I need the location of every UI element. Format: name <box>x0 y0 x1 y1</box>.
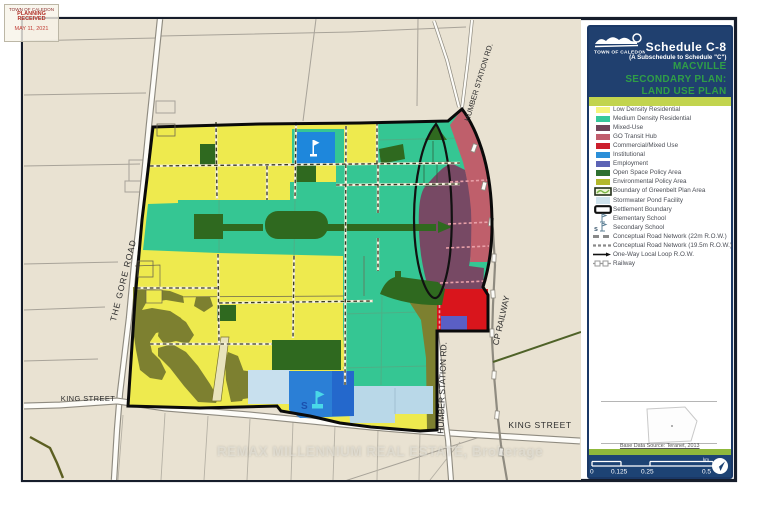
svg-text:0.25: 0.25 <box>641 469 654 476</box>
svg-text:0.125: 0.125 <box>611 469 628 476</box>
svg-text:S: S <box>301 401 308 412</box>
svg-text:0.5: 0.5 <box>702 469 711 476</box>
svg-text:KING STREET: KING STREET <box>508 420 571 430</box>
svg-text:KING STREET: KING STREET <box>61 394 115 403</box>
svg-text:km: km <box>703 457 709 462</box>
svg-text:0: 0 <box>590 469 594 476</box>
